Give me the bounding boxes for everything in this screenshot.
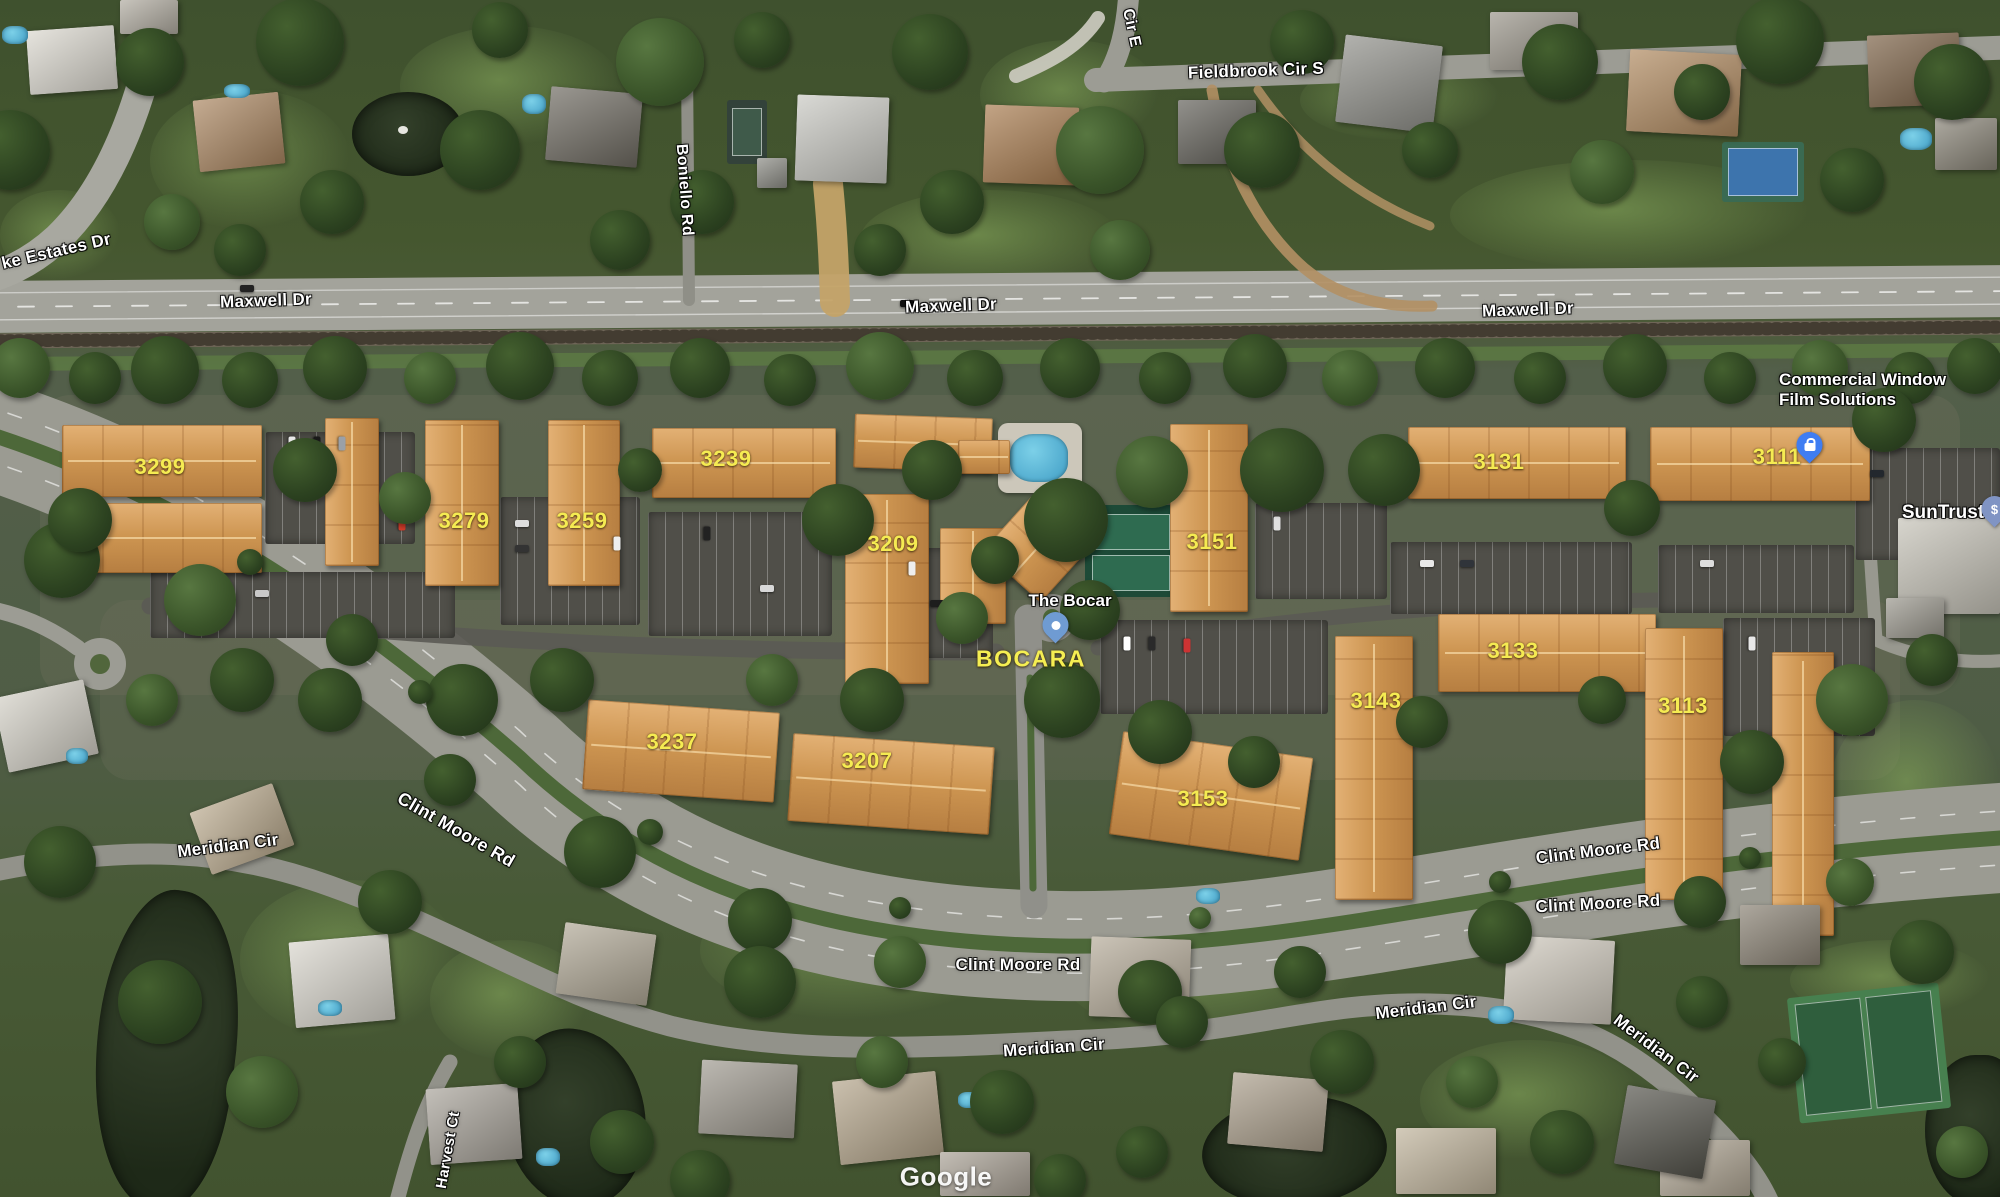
tree: [728, 888, 792, 952]
tree-layer: [0, 0, 2000, 1197]
house-roof: [189, 783, 294, 875]
tree: [856, 1036, 908, 1088]
tree: [1270, 10, 1334, 74]
tree: [1514, 352, 1566, 404]
building-number-3131: 3131: [1474, 449, 1525, 475]
tree: [874, 936, 926, 988]
parking-lot: [1658, 545, 1854, 613]
condo-building: [1650, 427, 1870, 501]
house-roof: [545, 86, 643, 168]
place-pin-balloon: [1037, 607, 1074, 644]
tree: [1736, 0, 1824, 84]
car: [314, 437, 321, 451]
tree: [936, 592, 988, 644]
car: [215, 588, 229, 595]
tree: [1228, 736, 1280, 788]
condo-building: [1335, 636, 1413, 900]
house-roof: [120, 0, 178, 34]
tree: [1704, 352, 1756, 404]
bank-pin-balloon: $: [1976, 491, 2000, 528]
tree: [131, 336, 199, 404]
car: [240, 285, 254, 292]
tree: [1116, 1126, 1168, 1178]
tree: [494, 1036, 546, 1088]
swimming-pool: [1900, 128, 1932, 150]
complex-ground: [100, 600, 1900, 780]
building-number-3259: 3259: [557, 508, 608, 534]
tree: [24, 826, 96, 898]
parking-lot: [1255, 503, 1387, 599]
building-number-3113: 3113: [1658, 693, 1708, 719]
road-label-maxwell-dr: Maxwell Dr: [905, 294, 997, 317]
swimming-pool: [66, 748, 88, 764]
tree: [734, 12, 790, 68]
parking-lot: [1723, 618, 1875, 736]
road-label-meridian-cir: Meridian Cir: [1374, 992, 1478, 1024]
tree: [404, 352, 456, 404]
tree: [1310, 1030, 1374, 1094]
condo-building: [853, 414, 993, 473]
tree: [326, 614, 378, 666]
condo-building: [958, 440, 1010, 474]
house-roof: [1740, 905, 1820, 965]
tree: [1468, 900, 1532, 964]
tree: [1676, 976, 1728, 1028]
tree: [889, 897, 911, 919]
tree: [379, 472, 431, 524]
parking-lot: [1390, 542, 1632, 614]
lawn-patch: [0, 190, 120, 280]
tree: [840, 668, 904, 732]
house-roof: [1227, 1072, 1329, 1152]
community-pool: [1010, 434, 1068, 482]
condo-building: [1170, 424, 1248, 612]
swimming-pool: [2, 26, 28, 44]
house-roof: [425, 1083, 522, 1165]
tree: [1446, 1056, 1498, 1108]
car: [1274, 517, 1281, 531]
car: [289, 437, 296, 451]
house-roof: [1886, 598, 1944, 638]
tree: [273, 438, 337, 502]
tree: [0, 338, 50, 398]
condo-building: [983, 485, 1100, 603]
tree: [486, 332, 554, 400]
swimming-pool: [318, 1000, 342, 1016]
building-number-3111: 3111: [1753, 444, 1802, 470]
tennis-court: [727, 100, 767, 164]
house-roof: [983, 104, 1080, 185]
tree: [1240, 428, 1324, 512]
fountain: [398, 126, 408, 134]
tree: [530, 648, 594, 712]
house-roof: [288, 934, 395, 1028]
tree: [69, 352, 121, 404]
swimming-pool: [1196, 888, 1220, 904]
tree: [590, 210, 650, 270]
ground-layer: [0, 0, 2000, 1197]
parking-lot: [500, 497, 640, 625]
tree: [303, 336, 367, 400]
tree: [1090, 220, 1150, 280]
building-number-3153: 3153: [1178, 786, 1229, 812]
tree: [1415, 338, 1475, 398]
tree: [724, 946, 796, 1018]
car: [515, 545, 529, 552]
car: [930, 600, 944, 607]
poi-label-the-bocar[interactable]: The Bocar: [1028, 591, 1111, 611]
lake: [1198, 1090, 1390, 1197]
house-roof: [1490, 12, 1578, 70]
tree: [226, 1056, 298, 1128]
tree: [1739, 847, 1761, 869]
tree: [1060, 580, 1120, 640]
house-roof: [1396, 1128, 1496, 1194]
tennis-court-surface: [1728, 148, 1798, 196]
tree: [1024, 478, 1108, 562]
road-label-clint-moore-rd: Clint Moore Rd: [1535, 891, 1661, 918]
condo-building: [425, 420, 499, 586]
lawn-layer: [0, 0, 2000, 1197]
house-roof: [1614, 1085, 1717, 1179]
parking-lot: [265, 432, 415, 544]
car: [255, 590, 269, 597]
tennis-court: [1722, 142, 1804, 202]
building-number-3239: 3239: [701, 446, 752, 472]
condo-building: [845, 494, 929, 684]
house-roof: [192, 92, 285, 173]
tree: [300, 170, 364, 234]
building-number-3151: 3151: [1187, 529, 1238, 555]
tree: [1118, 960, 1182, 1024]
tree: [670, 1150, 730, 1197]
tree: [802, 484, 874, 556]
condo-building: [652, 428, 836, 498]
satellite-map[interactable]: ke Estates Dr Maxwell Dr Maxwell Dr Maxw…: [0, 0, 2000, 1197]
road-label-meridian-cir: Meridian Cir: [1609, 1010, 1702, 1087]
tree: [1758, 1038, 1806, 1086]
tree: [670, 338, 730, 398]
car: [1870, 470, 1884, 477]
pool-deck: [998, 423, 1082, 493]
tree: [582, 350, 638, 406]
building-number-3133: 3133: [1488, 638, 1539, 664]
house-roof: [1898, 518, 2000, 614]
bank-pin-suntrust[interactable]: $: [1982, 496, 2000, 532]
condo-building: [62, 503, 262, 573]
car: [1149, 637, 1156, 651]
tree: [1570, 140, 1634, 204]
lawn-patch: [700, 880, 1020, 1020]
car: [704, 527, 711, 541]
car: [900, 300, 914, 307]
tree: [947, 350, 1003, 406]
tennis-court: [1787, 982, 1951, 1123]
tree: [1720, 730, 1784, 794]
tree: [1189, 907, 1211, 929]
tree: [1522, 24, 1598, 100]
tree: [920, 170, 984, 234]
poi-label-line1: Commercial Window: [1779, 370, 1946, 390]
road-label-maxwell-dr: Maxwell Dr: [1482, 298, 1574, 321]
lawn-patch: [150, 90, 350, 230]
lawn-patch: [400, 26, 620, 146]
lawn-patch: [1300, 60, 1500, 140]
condo-building: [325, 418, 379, 566]
tree: [210, 648, 274, 712]
condo-building: [548, 420, 620, 586]
tree: [1578, 676, 1626, 724]
swimming-pool: [958, 1092, 980, 1108]
building-number-3279: 3279: [439, 508, 490, 534]
tree: [1906, 634, 1958, 686]
tree: [1223, 334, 1287, 398]
building-layer: [0, 0, 2000, 1197]
lawn-patch: [980, 40, 1160, 150]
tennis-court-surface: [1092, 514, 1170, 550]
house-roof: [1660, 1140, 1750, 1196]
tree: [1890, 920, 1954, 984]
pond: [352, 92, 464, 176]
tree: [564, 816, 636, 888]
parking-layer: [0, 0, 2000, 1197]
house-roof: [1335, 34, 1443, 133]
tree: [1674, 64, 1730, 120]
tree: [1024, 662, 1100, 738]
tree: [1884, 352, 1936, 404]
tree: [1489, 871, 1511, 893]
road-label-lake-estates-dr: ke Estates Dr: [0, 229, 113, 274]
road-label-clint-moore-rd: Clint Moore Rd: [955, 955, 1080, 975]
tree: [1792, 340, 1848, 396]
tree: [48, 488, 112, 552]
tree: [256, 0, 344, 86]
road-label-cir-e: Cir E: [1118, 7, 1144, 49]
parking-lot: [1855, 448, 2000, 560]
lake: [490, 1017, 659, 1197]
car: [175, 588, 189, 595]
house-roof: [1089, 936, 1192, 1019]
tree: [971, 536, 1019, 584]
swimming-pool: [224, 84, 250, 98]
tree: [1116, 436, 1188, 508]
tree: [1820, 148, 1884, 212]
tree: [1139, 352, 1191, 404]
tree: [222, 352, 278, 408]
tree: [902, 440, 962, 500]
dollar-icon: $: [1991, 503, 1998, 516]
swimming-pool: [1488, 1006, 1514, 1024]
condo-building: [1772, 652, 1834, 936]
tennis-court-surface: [1865, 990, 1942, 1108]
tree: [618, 448, 662, 492]
tree: [854, 224, 906, 276]
car: [515, 520, 529, 527]
condo-building: [940, 528, 1006, 624]
tree: [408, 680, 432, 704]
tree: [1603, 334, 1667, 398]
hedge-row: [0, 343, 2000, 371]
house-roof: [698, 1060, 798, 1139]
car: [1184, 639, 1191, 653]
poi-label-commercial-window-film-solutions[interactable]: Commercial Window Film Solutions: [1779, 370, 1946, 410]
house-roof: [0, 679, 99, 772]
road-label-fieldbrook-cir-s: Fieldbrook Cir S: [1188, 59, 1325, 84]
house-roof: [940, 1152, 1030, 1196]
car: [399, 517, 406, 531]
tree: [637, 819, 663, 845]
lawn-patch: [240, 880, 460, 1040]
tree: [1816, 664, 1888, 736]
tree: [1040, 338, 1100, 398]
water-layer: [0, 0, 2000, 1197]
house-roof: [555, 922, 656, 1006]
tree: [1156, 996, 1208, 1048]
house-roof: [795, 94, 890, 183]
tennis-court-surface: [732, 108, 762, 156]
tree: [846, 332, 914, 400]
tree: [440, 110, 520, 190]
place-pin[interactable]: [1043, 612, 1070, 648]
road-label-clint-moore-rd: Clint Moore Rd: [1535, 833, 1662, 868]
car: [909, 562, 916, 576]
tree: [144, 194, 200, 250]
tree: [1914, 44, 1990, 120]
business-pin-commercial-window[interactable]: [1797, 432, 1824, 468]
condo-building: [1408, 427, 1626, 499]
parking-lot: [875, 548, 993, 658]
tree: [1402, 122, 1458, 178]
tree: [1322, 350, 1378, 406]
swimming-pool: [522, 94, 546, 114]
vehicle-layer: [0, 0, 2000, 1197]
parking-lot: [1100, 620, 1328, 714]
tree: [1348, 434, 1420, 506]
google-watermark: Google: [900, 1162, 993, 1193]
tree: [126, 674, 178, 726]
swimming-pool: [536, 1148, 560, 1166]
building-number-3209: 3209: [868, 531, 919, 557]
poi-label-line2: Film Solutions: [1779, 390, 1946, 410]
tree: [892, 14, 968, 90]
shopping-bag-icon: [1804, 443, 1815, 451]
tennis-court: [1085, 505, 1177, 597]
condo-building: [787, 733, 995, 835]
lawn-patch: [430, 940, 590, 1060]
house-roof: [1867, 32, 1961, 107]
road-label-harvest-ct: Harvest Ct: [433, 1110, 463, 1190]
tree: [426, 664, 498, 736]
tree: [1947, 338, 2000, 394]
tree: [670, 170, 734, 234]
label-layer: ke Estates Dr Maxwell Dr Maxwell Dr Maxw…: [0, 0, 2000, 1197]
house-roof: [1178, 100, 1256, 164]
car: [1124, 637, 1131, 651]
house-roof: [757, 158, 787, 188]
lawn-patch: [860, 190, 1120, 290]
tree: [424, 754, 476, 806]
tree: [590, 1110, 654, 1174]
condo-building: [1109, 731, 1314, 861]
tree: [118, 960, 202, 1044]
lawn-patch: [1420, 1040, 1640, 1160]
tree: [1826, 858, 1874, 906]
poi-label-suntrust[interactable]: SunTrust: [1902, 502, 1984, 524]
tree: [24, 522, 100, 598]
tree: [1674, 876, 1726, 928]
building-number-3207: 3207: [842, 748, 893, 774]
car: [1700, 560, 1714, 567]
tree: [1852, 388, 1916, 452]
house-roof: [1626, 49, 1742, 137]
car: [760, 585, 774, 592]
lake: [74, 882, 257, 1197]
tree: [298, 668, 362, 732]
condo-building: [62, 425, 262, 497]
tree: [164, 564, 236, 636]
tree: [1128, 700, 1192, 764]
road-label-clint-moore-rd: Clint Moore Rd: [394, 788, 519, 872]
tennis-court-surface: [1092, 555, 1170, 591]
tree: [746, 654, 798, 706]
parking-lot: [150, 572, 455, 638]
complex-ground: [40, 395, 1960, 695]
complex-name-label-bocara[interactable]: BOCARA: [976, 646, 1086, 673]
tree: [616, 18, 704, 106]
business-pin-balloon: [1791, 427, 1828, 464]
lawn-patch: [1450, 160, 1810, 270]
building-number-3299: 3299: [135, 454, 186, 480]
house-roof: [26, 25, 118, 95]
tree: [764, 354, 816, 406]
pin-dot-icon: [1051, 621, 1060, 630]
tree: [970, 1070, 1034, 1134]
tree: [1604, 480, 1660, 536]
condo-building: [1645, 628, 1723, 900]
tree: [1396, 696, 1448, 748]
tree: [1530, 1110, 1594, 1174]
lawn-patch: [1060, 900, 1360, 1040]
tree: [116, 28, 184, 96]
tree: [358, 870, 422, 934]
tennis-court-surface: [1795, 998, 1872, 1116]
condo-building: [582, 699, 780, 802]
tree: [237, 549, 263, 575]
lawn-patch: [1790, 940, 1990, 1020]
car: [1460, 560, 1474, 567]
condo-building: [1438, 614, 1656, 692]
parking-lot: [648, 512, 832, 636]
house-roof: [1935, 118, 1997, 170]
lawn-patch: [1830, 700, 2000, 880]
tree: [1936, 1126, 1988, 1178]
tree: [1274, 946, 1326, 998]
tree: [1034, 1154, 1086, 1197]
roads-graphic: [0, 0, 2000, 1197]
lake: [1925, 1055, 2000, 1197]
car: [1420, 560, 1434, 567]
car: [614, 537, 621, 551]
tree: [1224, 112, 1300, 188]
building-number-3143: 3143: [1351, 688, 1402, 714]
tree: [1056, 106, 1144, 194]
road-label-boniello-rd: Boniello Rd: [672, 143, 696, 236]
house-roof: [1503, 935, 1615, 1025]
car: [339, 437, 346, 451]
car: [1749, 637, 1756, 651]
building-number-3237: 3237: [647, 729, 698, 755]
tree: [0, 110, 50, 190]
